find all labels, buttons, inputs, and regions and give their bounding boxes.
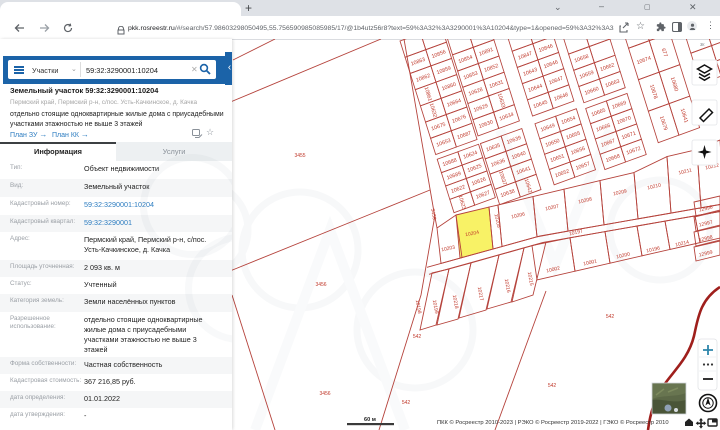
svg-text:10199: 10199	[431, 299, 439, 314]
svg-text:10629: 10629	[473, 103, 489, 114]
svg-text:10663: 10663	[605, 79, 621, 90]
svg-text:10674: 10674	[636, 55, 652, 66]
svg-text:60 м: 60 м	[364, 417, 376, 423]
svg-text:10632: 10632	[428, 102, 438, 118]
svg-text:10634: 10634	[499, 112, 515, 123]
svg-text:10633: 10633	[496, 92, 506, 108]
svg-text:10214: 10214	[675, 239, 690, 248]
svg-text:10891: 10891	[478, 47, 494, 58]
svg-text:542: 542	[548, 383, 557, 389]
svg-text:10645: 10645	[533, 99, 549, 110]
svg-text:3456: 3456	[429, 208, 437, 220]
svg-text:10665: 10665	[591, 108, 607, 119]
svg-text:10655: 10655	[566, 131, 582, 142]
svg-text:10853: 10853	[463, 71, 479, 82]
svg-text:10211: 10211	[678, 167, 693, 176]
svg-text:10676: 10676	[451, 114, 467, 125]
svg-text:10205: 10205	[493, 213, 502, 228]
svg-text:10688: 10688	[442, 157, 458, 168]
svg-text:10198: 10198	[414, 299, 422, 314]
svg-text:10656: 10656	[570, 146, 586, 157]
svg-text:10660: 10660	[584, 86, 600, 97]
svg-text:3456: 3456	[315, 282, 326, 288]
svg-text:10630: 10630	[478, 119, 494, 130]
svg-text:10639: 10639	[506, 135, 522, 146]
svg-text:10668: 10668	[605, 153, 621, 164]
svg-text:10653: 10653	[436, 138, 452, 149]
svg-text:зк: зк	[700, 42, 705, 48]
svg-text:10217: 10217	[476, 286, 484, 301]
svg-text:10636: 10636	[490, 158, 506, 169]
svg-text:10669: 10669	[611, 100, 627, 111]
svg-text:10860: 10860	[441, 82, 457, 93]
svg-text:10847: 10847	[517, 51, 533, 62]
svg-text:10846: 10846	[538, 43, 554, 54]
svg-text:10637: 10637	[497, 170, 507, 186]
svg-text:10207: 10207	[545, 203, 560, 212]
svg-text:10643: 10643	[523, 67, 539, 78]
svg-text:10215: 10215	[526, 271, 534, 286]
svg-text:10206: 10206	[511, 211, 526, 220]
svg-text:10203: 10203	[441, 245, 456, 254]
svg-text:10622: 10622	[450, 184, 466, 195]
svg-text:542: 542	[606, 314, 615, 320]
svg-text:10854: 10854	[458, 54, 474, 65]
svg-text:10679: 10679	[658, 115, 668, 131]
svg-text:10678: 10678	[648, 84, 658, 100]
svg-text:10626: 10626	[471, 177, 487, 188]
svg-text:10647: 10647	[548, 76, 564, 87]
svg-text:10671: 10671	[621, 131, 637, 142]
svg-text:10654: 10654	[561, 115, 577, 126]
svg-text:10861: 10861	[423, 86, 433, 102]
svg-text:542: 542	[413, 334, 422, 340]
svg-text:10852: 10852	[484, 63, 500, 74]
svg-text:10623: 10623	[457, 194, 467, 210]
svg-text:10670: 10670	[616, 115, 632, 126]
svg-text:10648: 10648	[553, 92, 569, 103]
svg-text:10624: 10624	[463, 150, 479, 161]
svg-text:10218: 10218	[451, 294, 459, 309]
svg-text:10216: 10216	[503, 278, 511, 293]
svg-text:10650: 10650	[545, 138, 561, 149]
svg-text:10628: 10628	[468, 87, 484, 98]
svg-text:10689: 10689	[446, 171, 462, 182]
svg-text:10659: 10659	[579, 70, 595, 81]
svg-text:10649: 10649	[540, 123, 556, 134]
svg-text:10641: 10641	[679, 108, 689, 124]
svg-text:3455: 3455	[294, 153, 305, 159]
svg-text:542: 542	[402, 400, 411, 406]
svg-text:10672: 10672	[626, 146, 642, 157]
svg-text:677: 677	[660, 48, 668, 59]
svg-text:10664: 10664	[446, 98, 462, 109]
svg-text:10644: 10644	[528, 83, 544, 94]
svg-text:10859: 10859	[436, 65, 452, 76]
svg-text:10652: 10652	[554, 169, 570, 180]
svg-text:10638: 10638	[500, 188, 516, 199]
svg-text:10635: 10635	[486, 143, 502, 154]
svg-text:10856: 10856	[431, 49, 447, 60]
svg-text:10675: 10675	[431, 122, 447, 133]
svg-text:10862: 10862	[415, 73, 431, 84]
svg-text:10625: 10625	[467, 163, 483, 174]
svg-text:10680: 10680	[669, 76, 679, 92]
svg-text:10687: 10687	[457, 130, 473, 141]
svg-text:10651: 10651	[550, 153, 566, 164]
svg-text:10658: 10658	[574, 54, 590, 65]
svg-text:10627: 10627	[475, 190, 491, 201]
svg-text:10662: 10662	[600, 62, 616, 73]
svg-text:3456: 3456	[319, 391, 330, 397]
svg-text:10863: 10863	[410, 57, 426, 68]
svg-text:10646: 10646	[543, 59, 559, 70]
svg-text:ПКК © Росреестр 2010-2023 | РЭ: ПКК © Росреестр 2010-2023 | РЭКО © Росре…	[437, 419, 669, 426]
svg-text:10631: 10631	[489, 79, 505, 90]
